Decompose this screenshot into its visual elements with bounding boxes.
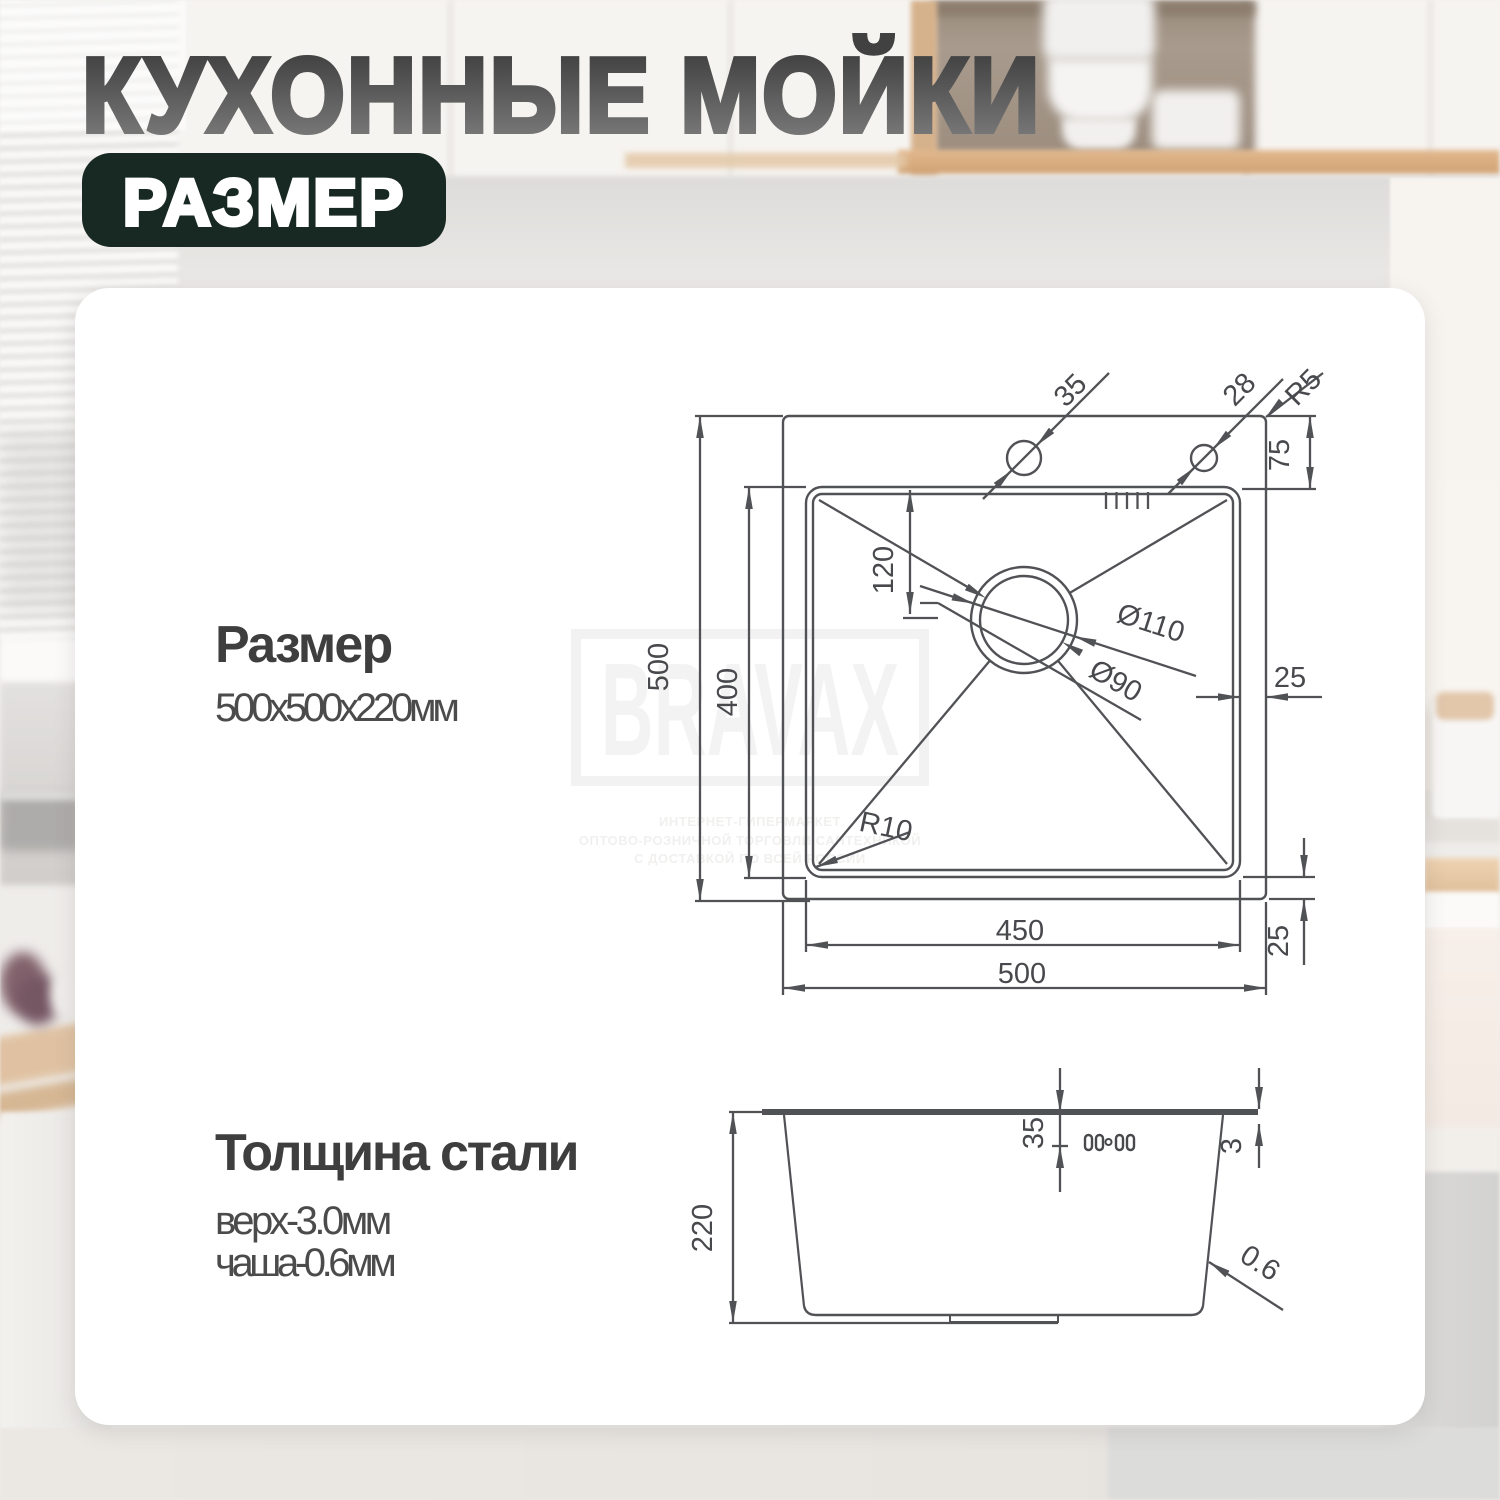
svg-text:220: 220 [687, 1204, 719, 1252]
svg-text:450: 450 [996, 915, 1044, 947]
svg-text:500: 500 [643, 643, 675, 691]
svg-text:500: 500 [998, 958, 1046, 990]
svg-text:25: 25 [1274, 662, 1306, 694]
svg-text:120: 120 [868, 546, 900, 594]
svg-text:Ø90: Ø90 [1084, 654, 1147, 709]
svg-text:75: 75 [1264, 439, 1296, 471]
svg-text:35: 35 [1048, 368, 1093, 413]
svg-text:35: 35 [1018, 1117, 1050, 1149]
svg-text:400: 400 [712, 668, 744, 716]
svg-text:R10: R10 [857, 806, 916, 848]
svg-text:3: 3 [1216, 1138, 1248, 1154]
svg-text:25: 25 [1263, 925, 1295, 957]
svg-text:R5: R5 [1279, 363, 1328, 412]
svg-text:0.6: 0.6 [1234, 1239, 1285, 1288]
svg-text:Ø110: Ø110 [1113, 598, 1188, 650]
